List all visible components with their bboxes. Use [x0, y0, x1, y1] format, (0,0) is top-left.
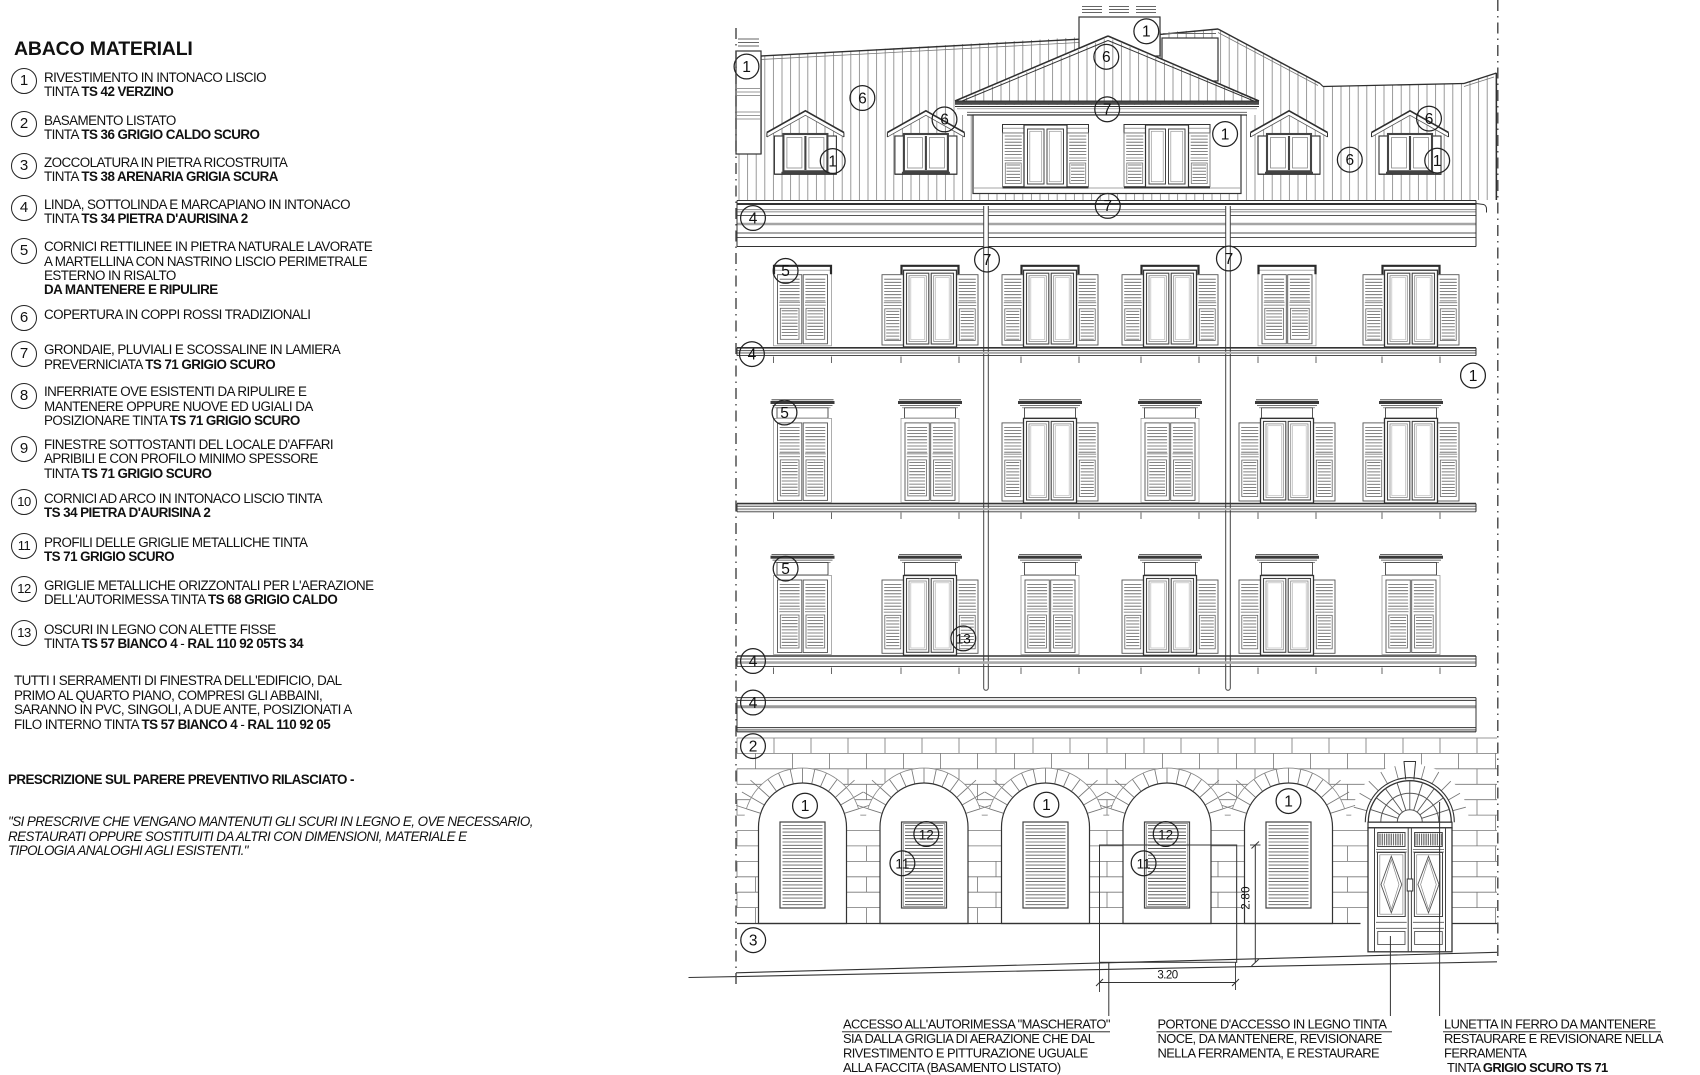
- svg-text:5: 5: [781, 561, 790, 578]
- svg-text:4: 4: [748, 346, 757, 363]
- svg-text:7: 7: [1225, 251, 1234, 268]
- svg-text:NOCE, DA MANTENERE, REVISIONAR: NOCE, DA MANTENERE, REVISIONARE: [1158, 1031, 1383, 1046]
- svg-text:1: 1: [1042, 797, 1051, 814]
- svg-text:6: 6: [858, 90, 867, 107]
- svg-text:TINTA GRIGIO SCURO TS 71: TINTA GRIGIO SCURO TS 71: [1447, 1060, 1608, 1075]
- svg-text:FERRAMENTA: FERRAMENTA: [1444, 1045, 1527, 1060]
- svg-text:1: 1: [1469, 368, 1478, 385]
- svg-text:2: 2: [749, 738, 758, 755]
- svg-text:13: 13: [956, 632, 971, 647]
- svg-text:7: 7: [1103, 198, 1112, 215]
- svg-text:RESTAURARE E REVISIONARE NELLA: RESTAURARE E REVISIONARE NELLA: [1444, 1031, 1664, 1046]
- svg-text:LUNETTA IN FERRO DA MANTENERE: LUNETTA IN FERRO DA MANTENERE: [1444, 1016, 1657, 1031]
- svg-text:1: 1: [801, 798, 810, 815]
- svg-text:1: 1: [1221, 126, 1230, 143]
- svg-text:ACCESSO ALL'AUTORIMESSA "MASCH: ACCESSO ALL'AUTORIMESSA "MASCHERATO": [843, 1016, 1111, 1031]
- svg-text:6: 6: [940, 112, 949, 129]
- svg-text:1: 1: [1142, 24, 1151, 41]
- svg-text:3: 3: [749, 933, 758, 950]
- svg-text:2.80: 2.80: [1241, 886, 1253, 910]
- svg-text:11: 11: [1137, 857, 1151, 872]
- svg-text:6: 6: [1345, 152, 1354, 169]
- svg-text:12: 12: [919, 827, 934, 842]
- svg-text:11: 11: [895, 857, 909, 872]
- svg-text:1: 1: [1284, 793, 1293, 810]
- svg-text:5: 5: [781, 263, 790, 280]
- svg-text:ALLA FACCITA (BASAMENTO LISTAT: ALLA FACCITA (BASAMENTO LISTATO): [843, 1060, 1061, 1075]
- svg-text:6: 6: [1102, 49, 1111, 66]
- svg-text:PORTONE D'ACCESSO IN LEGNO TIN: PORTONE D'ACCESSO IN LEGNO TINTA: [1158, 1016, 1388, 1031]
- svg-text:12: 12: [1158, 827, 1173, 842]
- svg-text:1: 1: [828, 153, 837, 170]
- svg-text:7: 7: [983, 252, 992, 269]
- svg-text:1: 1: [1433, 153, 1442, 170]
- svg-text:6: 6: [1425, 111, 1434, 128]
- svg-text:7: 7: [1103, 102, 1112, 119]
- svg-text:4: 4: [749, 695, 758, 712]
- svg-text:1: 1: [742, 59, 751, 76]
- svg-text:SIA DALLA GRIGLIA DI AERAZIONE: SIA DALLA GRIGLIA DI AERAZIONE CHE DAL: [843, 1031, 1095, 1046]
- svg-text:3.20: 3.20: [1157, 970, 1177, 982]
- svg-text:NELLA FERRAMENTA, E RESTAURARE: NELLA FERRAMENTA, E RESTAURARE: [1158, 1045, 1380, 1060]
- svg-text:4: 4: [749, 210, 758, 227]
- svg-text:4: 4: [749, 653, 758, 670]
- svg-text:5: 5: [780, 405, 789, 422]
- svg-text:RIVESTIMENTO E PITTURAZIONE UG: RIVESTIMENTO E PITTURAZIONE UGUALE: [843, 1045, 1089, 1060]
